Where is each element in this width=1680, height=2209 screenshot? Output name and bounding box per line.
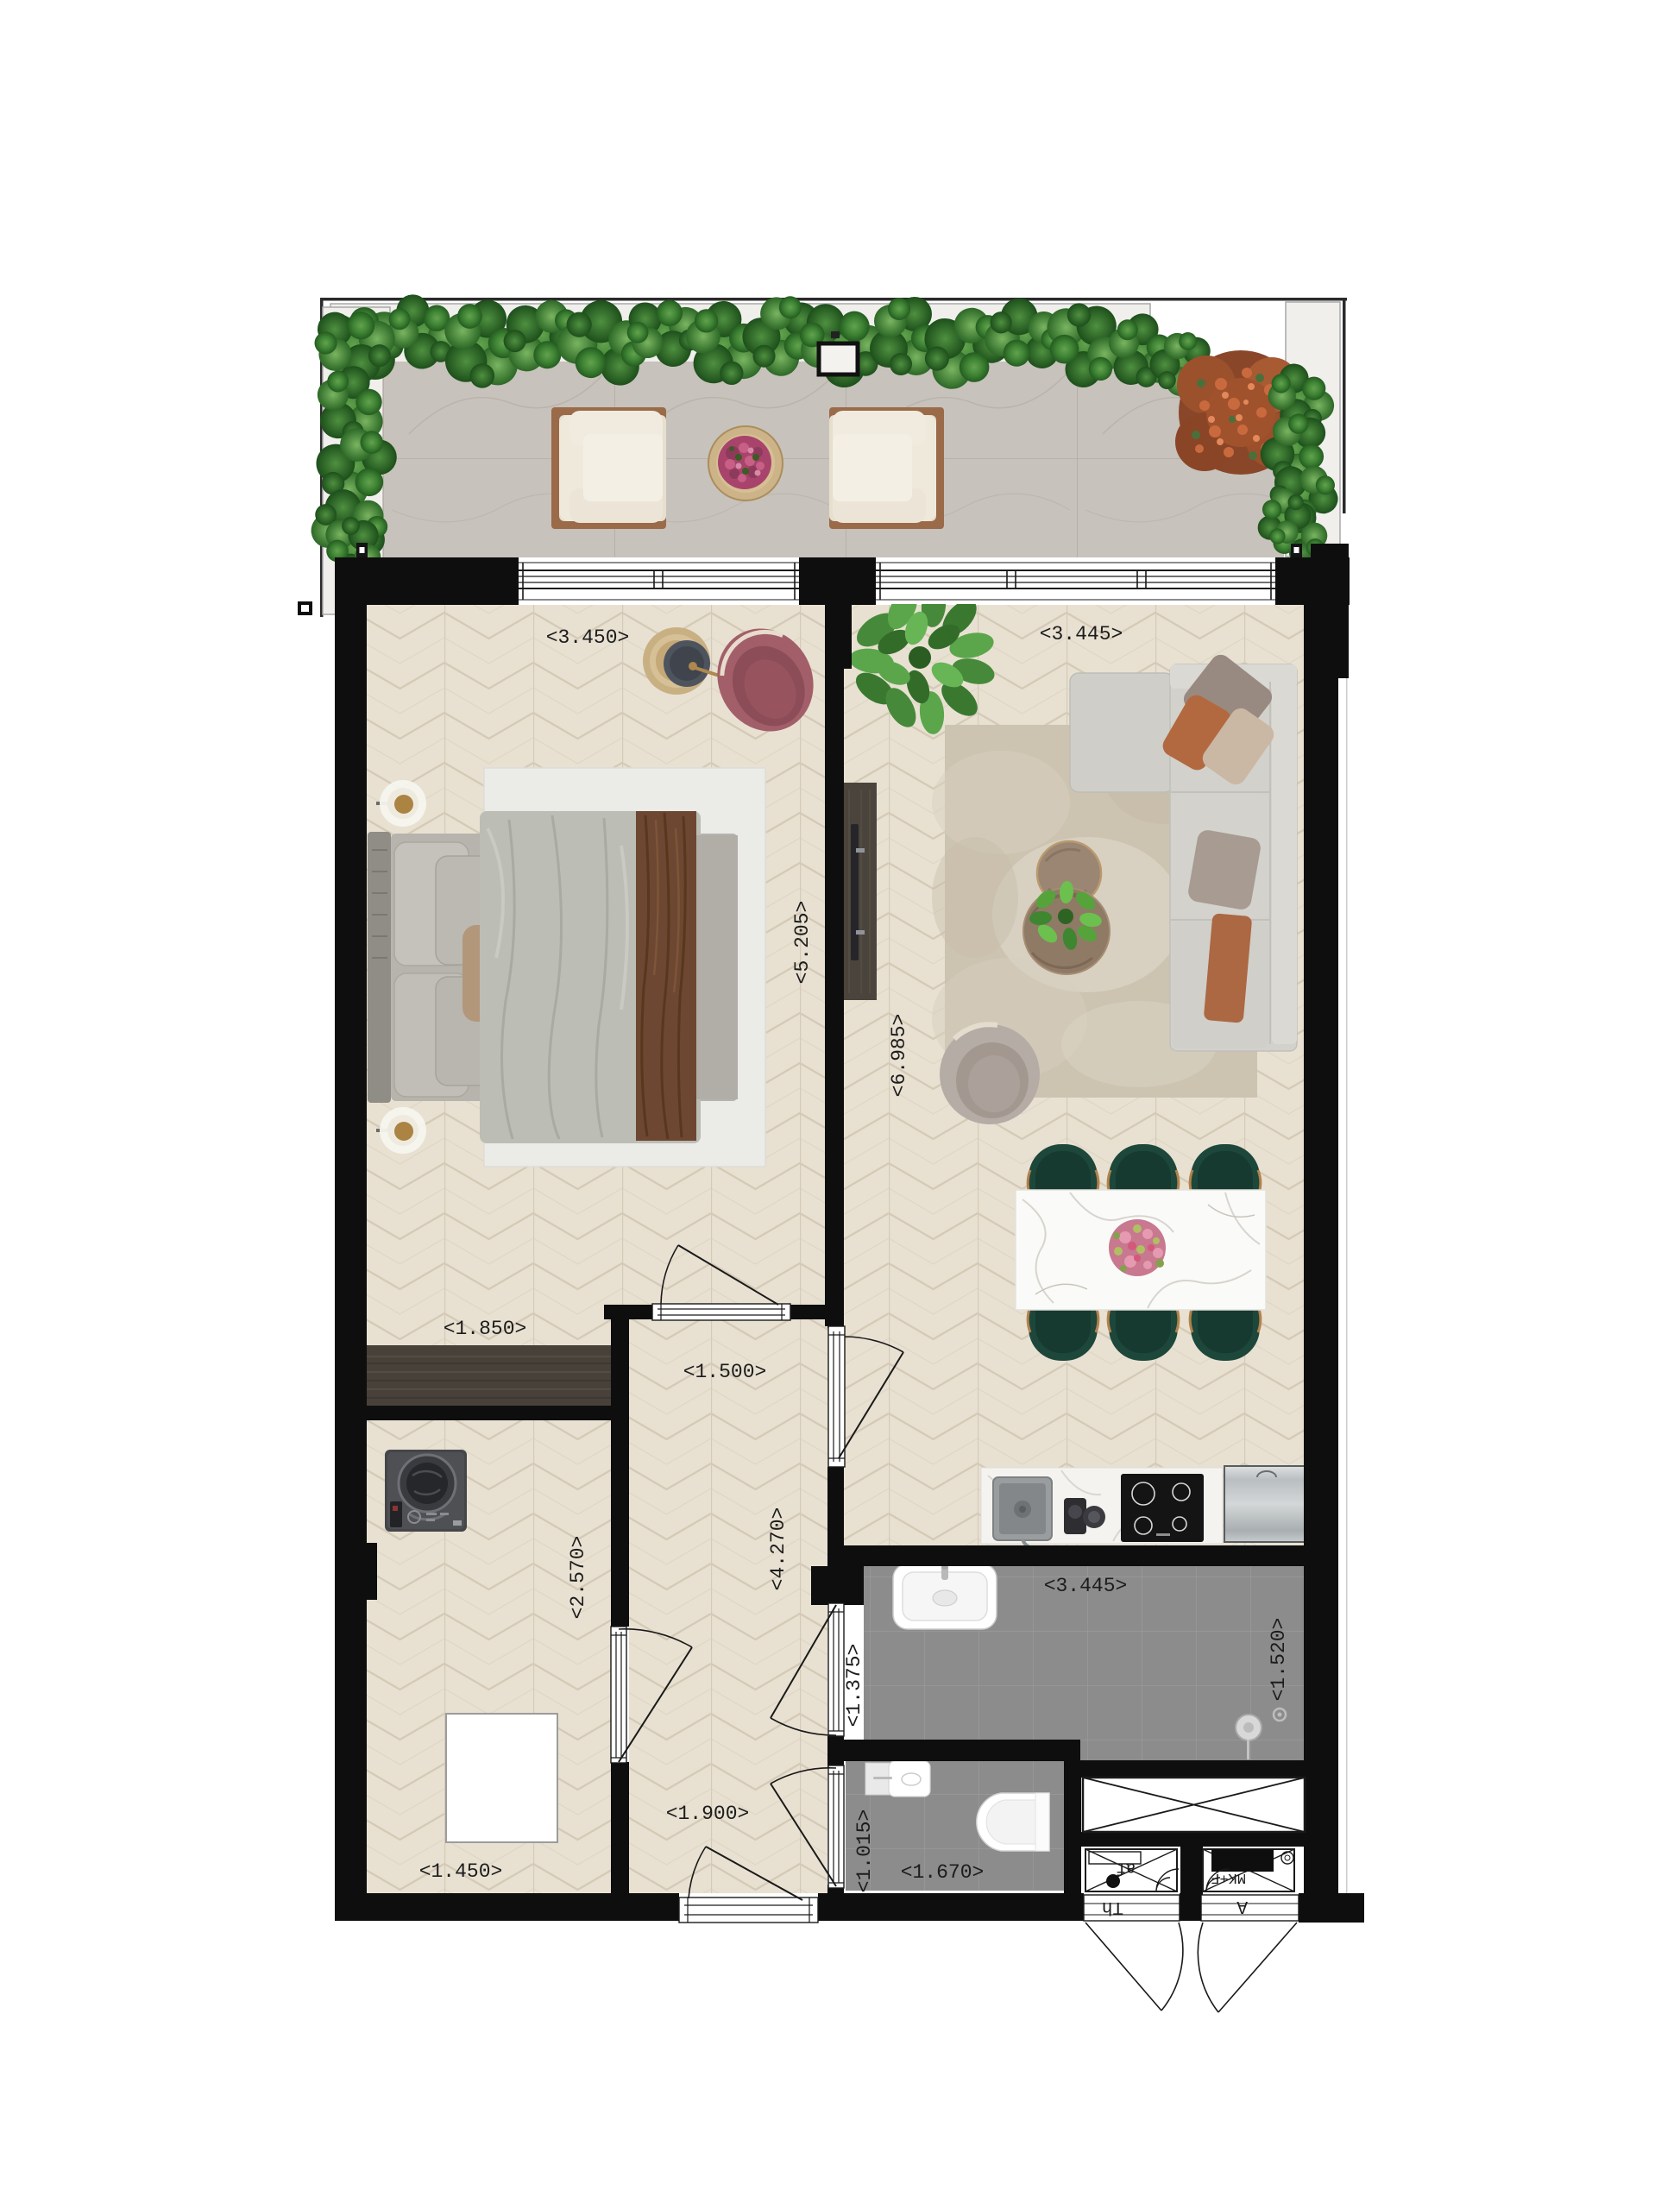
svg-text:<2.570>: <2.570>: [567, 1536, 589, 1620]
svg-text:<1.670>: <1.670>: [901, 1861, 985, 1884]
svg-text:MK+F: MK+F: [1211, 1869, 1246, 1885]
svg-text:<1.450>: <1.450>: [419, 1860, 503, 1883]
svg-text:<1.015>: <1.015>: [853, 1809, 876, 1893]
svg-text:<3.450>: <3.450>: [546, 626, 630, 649]
svg-text:<1.850>: <1.850>: [444, 1318, 527, 1340]
svg-text:A: A: [1236, 1896, 1248, 1916]
svg-text:<1.375>: <1.375>: [843, 1644, 865, 1728]
svg-text:<5.205>: <5.205>: [791, 901, 814, 985]
svg-text:<1.500>: <1.500>: [683, 1361, 767, 1383]
svg-text:Th: Th: [1102, 1897, 1123, 1916]
svg-text:<1.520>: <1.520>: [1268, 1618, 1290, 1702]
svg-text:<6.985>: <6.985>: [888, 1014, 910, 1098]
svg-text:<3.445>: <3.445>: [1040, 623, 1123, 645]
svg-text:<1.900>: <1.900>: [666, 1803, 750, 1825]
svg-text:<4.270>: <4.270>: [767, 1507, 790, 1591]
svg-text:<3.445>: <3.445>: [1044, 1575, 1128, 1597]
svg-text:af: af: [1116, 1859, 1136, 1878]
